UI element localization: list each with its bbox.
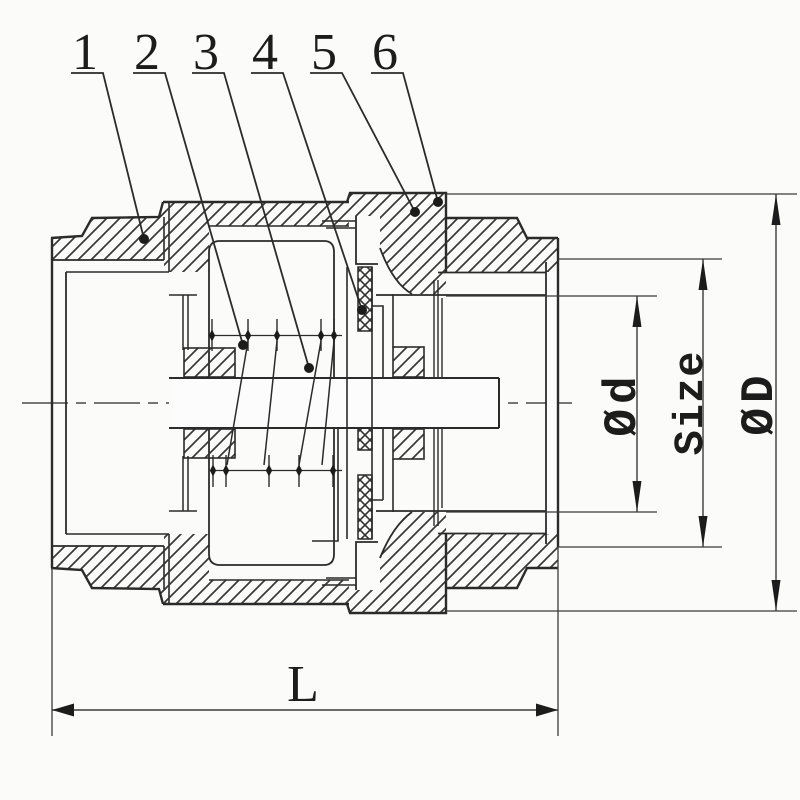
svg-text:Ød: Ød: [597, 371, 649, 436]
svg-text:ØD: ØD: [734, 370, 786, 435]
svg-text:Size: Size: [667, 351, 715, 456]
svg-text:L: L: [287, 656, 319, 713]
